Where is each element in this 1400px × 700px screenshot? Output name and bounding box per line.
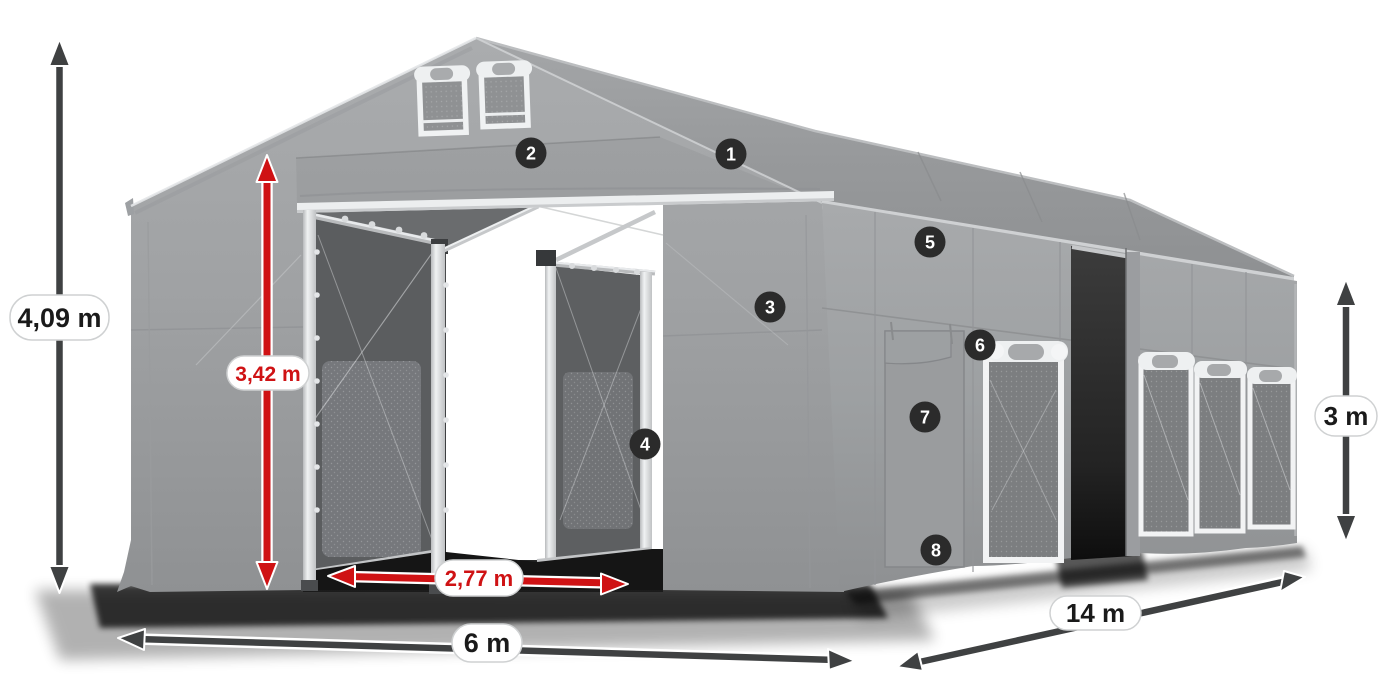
svg-text:2: 2: [526, 144, 536, 164]
svg-text:2,77 m: 2,77 m: [445, 566, 514, 591]
svg-text:3 m: 3 m: [1324, 401, 1369, 431]
svg-text:6: 6: [975, 336, 985, 356]
svg-text:4,09 m: 4,09 m: [17, 303, 101, 333]
svg-text:4: 4: [640, 435, 650, 455]
svg-text:3: 3: [765, 298, 775, 318]
svg-text:14 m: 14 m: [1066, 598, 1125, 628]
svg-text:8: 8: [931, 541, 941, 561]
svg-text:6 m: 6 m: [464, 628, 511, 658]
svg-text:7: 7: [920, 408, 930, 428]
svg-text:3,42 m: 3,42 m: [235, 363, 300, 386]
svg-text:1: 1: [726, 145, 736, 165]
svg-text:5: 5: [925, 233, 935, 253]
